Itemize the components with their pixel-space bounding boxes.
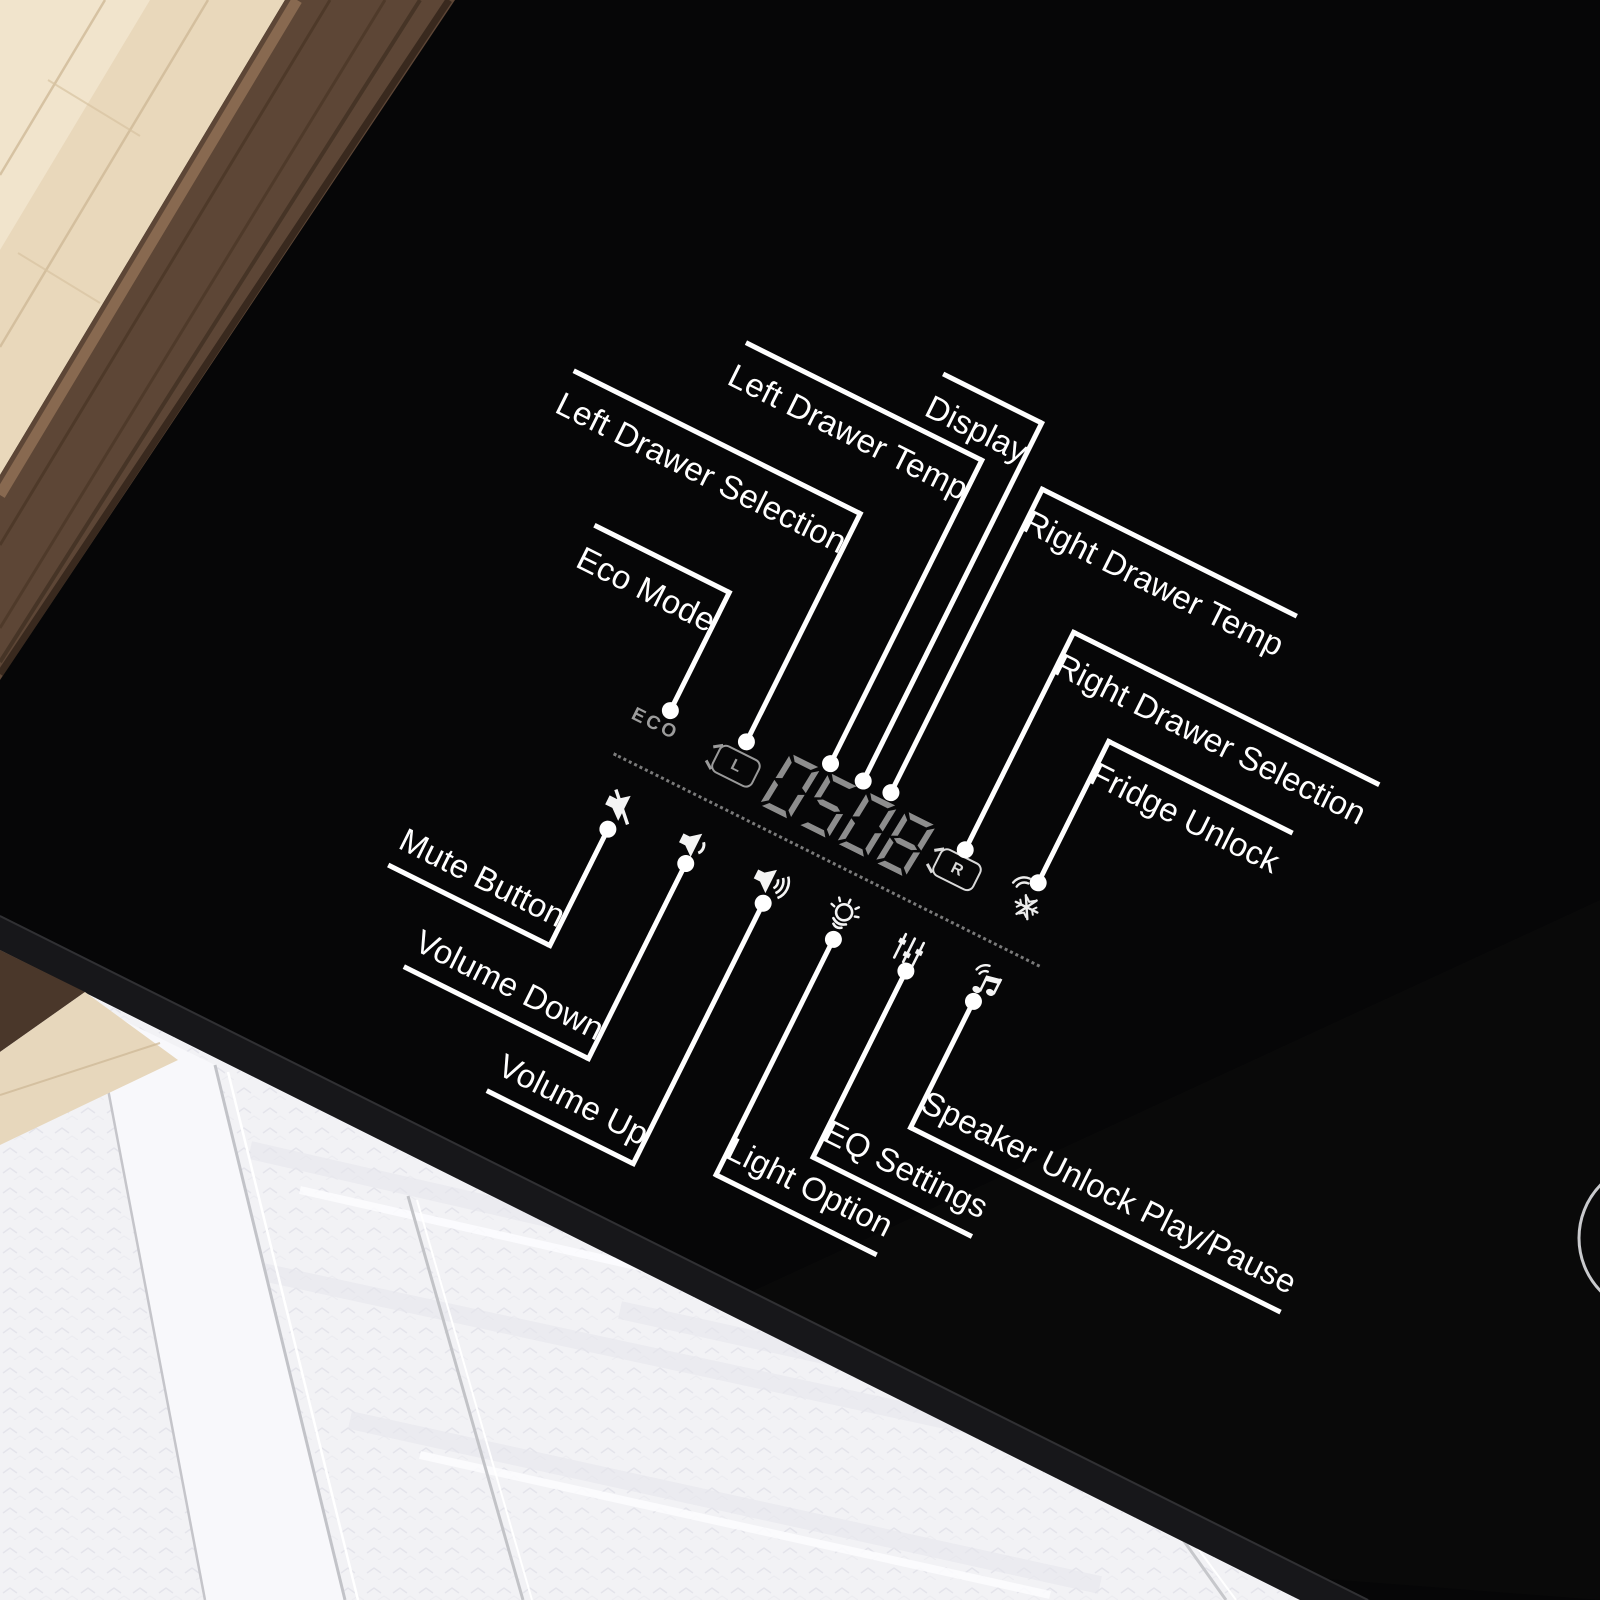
right-drawer-letter: R [948, 859, 966, 880]
annotated-appliance-diagram: ECO L R [0, 0, 1600, 1600]
left-drawer-letter: L [728, 756, 745, 776]
